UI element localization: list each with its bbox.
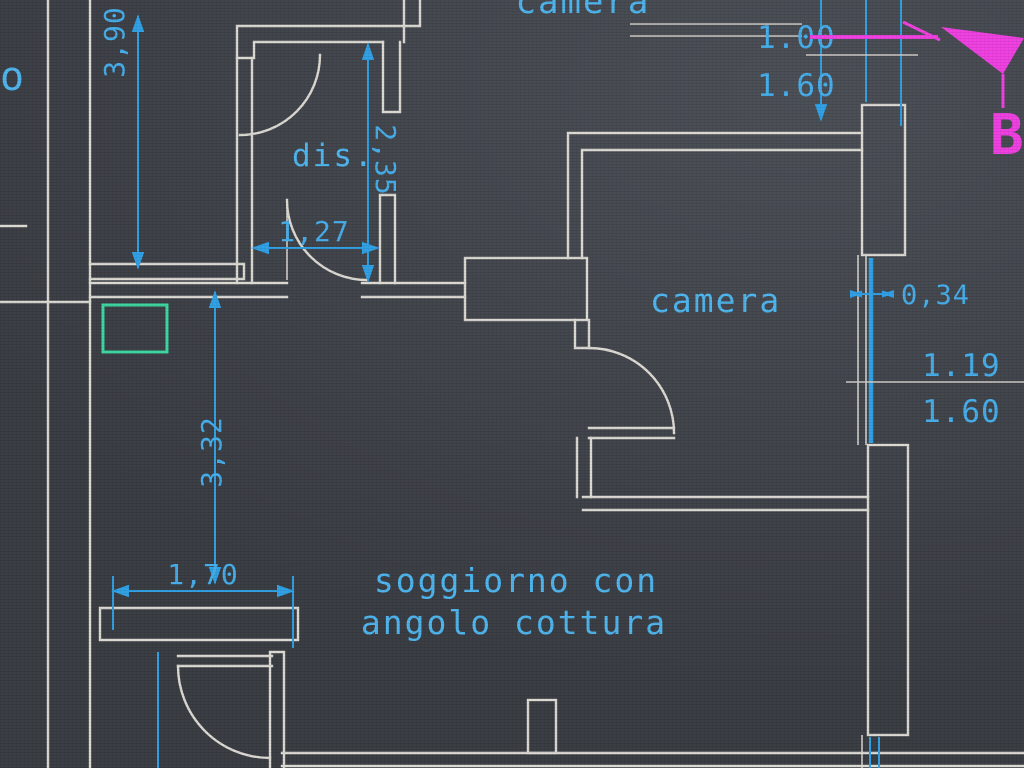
wall-pier xyxy=(465,258,587,320)
wall-pillar-east-1 xyxy=(862,105,905,255)
window-right-width-text: 1.19 xyxy=(922,348,1001,384)
cad-viewport[interactable]: 3,90 2,35 1,27 3,32 1,70 xyxy=(0,0,1024,768)
wall-pillar-east-2 xyxy=(868,445,908,735)
dimension-3-90-text: 3,90 xyxy=(98,6,131,77)
room-label-camera-top: camera xyxy=(516,0,651,22)
section-marker: B xyxy=(810,22,1024,168)
dimension-1-27: 1,27 xyxy=(253,215,378,248)
dimension-3-32: 3,32 xyxy=(195,292,228,583)
section-marker-triangle xyxy=(941,27,1024,74)
dimension-0-34-text: 0,34 xyxy=(901,280,970,311)
dimension-0-34: 0,34 xyxy=(850,280,970,311)
room-label-dis: dis. xyxy=(292,138,375,174)
room-label-soggiorno-line2: angolo cottura xyxy=(361,603,667,642)
dimension-1-70: 1,70 xyxy=(113,558,293,768)
green-highlight-box[interactable] xyxy=(103,305,167,352)
door-arc-camera xyxy=(589,348,674,433)
room-label-soggiorno-line1: soggiorno con xyxy=(374,561,658,600)
windows-layer xyxy=(870,258,879,768)
floor-plan-canvas[interactable]: 3,90 2,35 1,27 3,32 1,70 xyxy=(0,0,1024,768)
dimension-1-27-text: 1,27 xyxy=(278,215,349,248)
dimension-3-32-text: 3,32 xyxy=(195,416,228,487)
door-arc-entry xyxy=(178,666,270,758)
room-label-camera-right: camera xyxy=(650,281,781,320)
window-annotation-top: 1.00 1.60 xyxy=(757,0,918,126)
door-leaf-camera xyxy=(589,428,674,438)
room-labels-layer: camera o dis. camera soggiorno con angol… xyxy=(0,0,781,642)
wall-stub-bottom xyxy=(528,700,556,753)
dimension-1-70-text: 1,70 xyxy=(167,558,238,591)
window-right-height-text: 1.60 xyxy=(922,394,1001,430)
dimension-3-90: 3,90 xyxy=(98,6,138,268)
room-label-left-partial: o xyxy=(0,54,26,100)
window-top-height-text: 1.60 xyxy=(757,68,836,104)
section-marker-label: B xyxy=(990,103,1024,168)
door-leaf-entry xyxy=(178,656,272,666)
